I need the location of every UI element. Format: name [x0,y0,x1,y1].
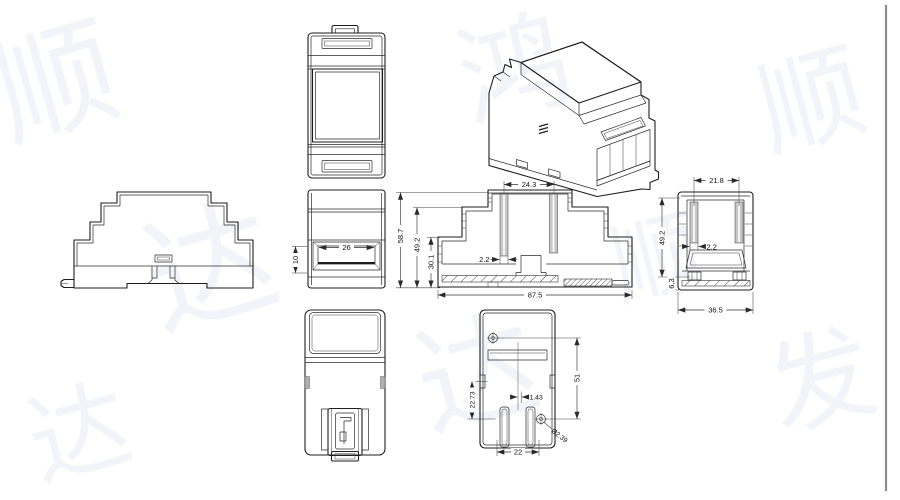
svg-text:58.7: 58.7 [396,229,405,244]
din-clip [322,409,369,462]
watermark-tile: 达 [402,293,554,458]
clip-slider [336,413,355,449]
rib-left [500,194,508,256]
rib-right [550,194,558,253]
svg-text:22: 22 [514,448,522,457]
view-front-section: 24.3 2.2 58.7 49.2 30.1 [396,180,632,300]
screw-boss [516,256,546,276]
din-clip-handle [332,26,358,34]
watermark-tile: 顺 [745,29,878,174]
drawing-sheet: 顺 达 鸿 达 顺 发 达 顺 [0,0,900,500]
dim-front-section-rib-thickness: 2.2 [479,255,489,264]
dim-front-section-total-width: 87.5 [524,291,546,300]
svg-text:26: 26 [342,243,350,252]
svg-text:87.5: 87.5 [528,291,543,300]
svg-text:6.3: 6.3 [667,278,676,288]
side-tab-right [381,377,386,389]
dim-front-section-pin-span: 24.3 [518,180,540,189]
side-notch-right [550,375,555,388]
dim-side-recess-width: 26 [339,243,354,252]
drawing-svg: 顺 达 鸿 达 顺 发 达 顺 [0,0,900,500]
dim-side-section-rib-thickness: 2.2 [707,243,717,252]
watermark-tile: 达 [16,364,143,500]
svg-text:36.5: 36.5 [708,306,723,315]
dim-side-section-foot-height: 6.3 [667,276,676,292]
watermark-tile: 顺 [0,1,133,168]
bottom-slot [322,161,372,173]
top-recess [310,313,381,354]
iso-terminal-bay [597,130,650,181]
side-tab-left [305,377,310,389]
rib-right [735,202,743,243]
svg-text:49.2: 49.2 [413,238,422,253]
rib-left [690,202,698,243]
foot-right [733,272,746,280]
svg-text:24.3: 24.3 [522,180,537,189]
svg-text:22.73: 22.73 [470,391,477,408]
din-clip-section [564,279,612,286]
dim-bottom-center-offset: 1.43 [530,395,543,402]
dim-bottom-edge-to-hole: 22.73 [468,388,477,413]
dim-side-section-body-height: 49.2 [658,227,667,249]
watermark: 顺 达 鸿 达 顺 发 达 顺 [0,0,888,500]
dim-bottom-hole-pitch: 51 [573,371,582,385]
view-top-plan [308,26,385,179]
dim-bottom-slot-span: 22 [511,448,525,457]
lid-face [313,69,383,142]
top-slot [322,39,372,49]
dim-front-section-total-height: 58.7 [396,225,405,247]
watermark-tile: 发 [755,309,888,454]
svg-text:21.8: 21.8 [709,176,724,185]
dim-side-section-total-width: 36.5 [705,306,727,315]
svg-text:51: 51 [573,374,582,382]
watermark-tile: 鸿 [445,0,583,145]
dim-side-recess-height: 10 [291,253,300,267]
view-bottom-clip [305,310,385,461]
dim-bottom-hole-diameter: Ø2.39 [550,428,569,445]
svg-text:Ø2.39: Ø2.39 [550,428,569,445]
dim-front-section-inner-height: 30.1 [427,251,436,273]
svg-text:10: 10 [291,256,300,264]
view-side: 26 10 [291,190,385,288]
svg-text:30.1: 30.1 [427,255,436,270]
dim-side-section-pin-span: 21.8 [706,176,728,185]
dim-front-section-body-height: 49.2 [413,234,422,256]
clip-tab [332,452,359,462]
svg-text:49.2: 49.2 [658,231,667,246]
